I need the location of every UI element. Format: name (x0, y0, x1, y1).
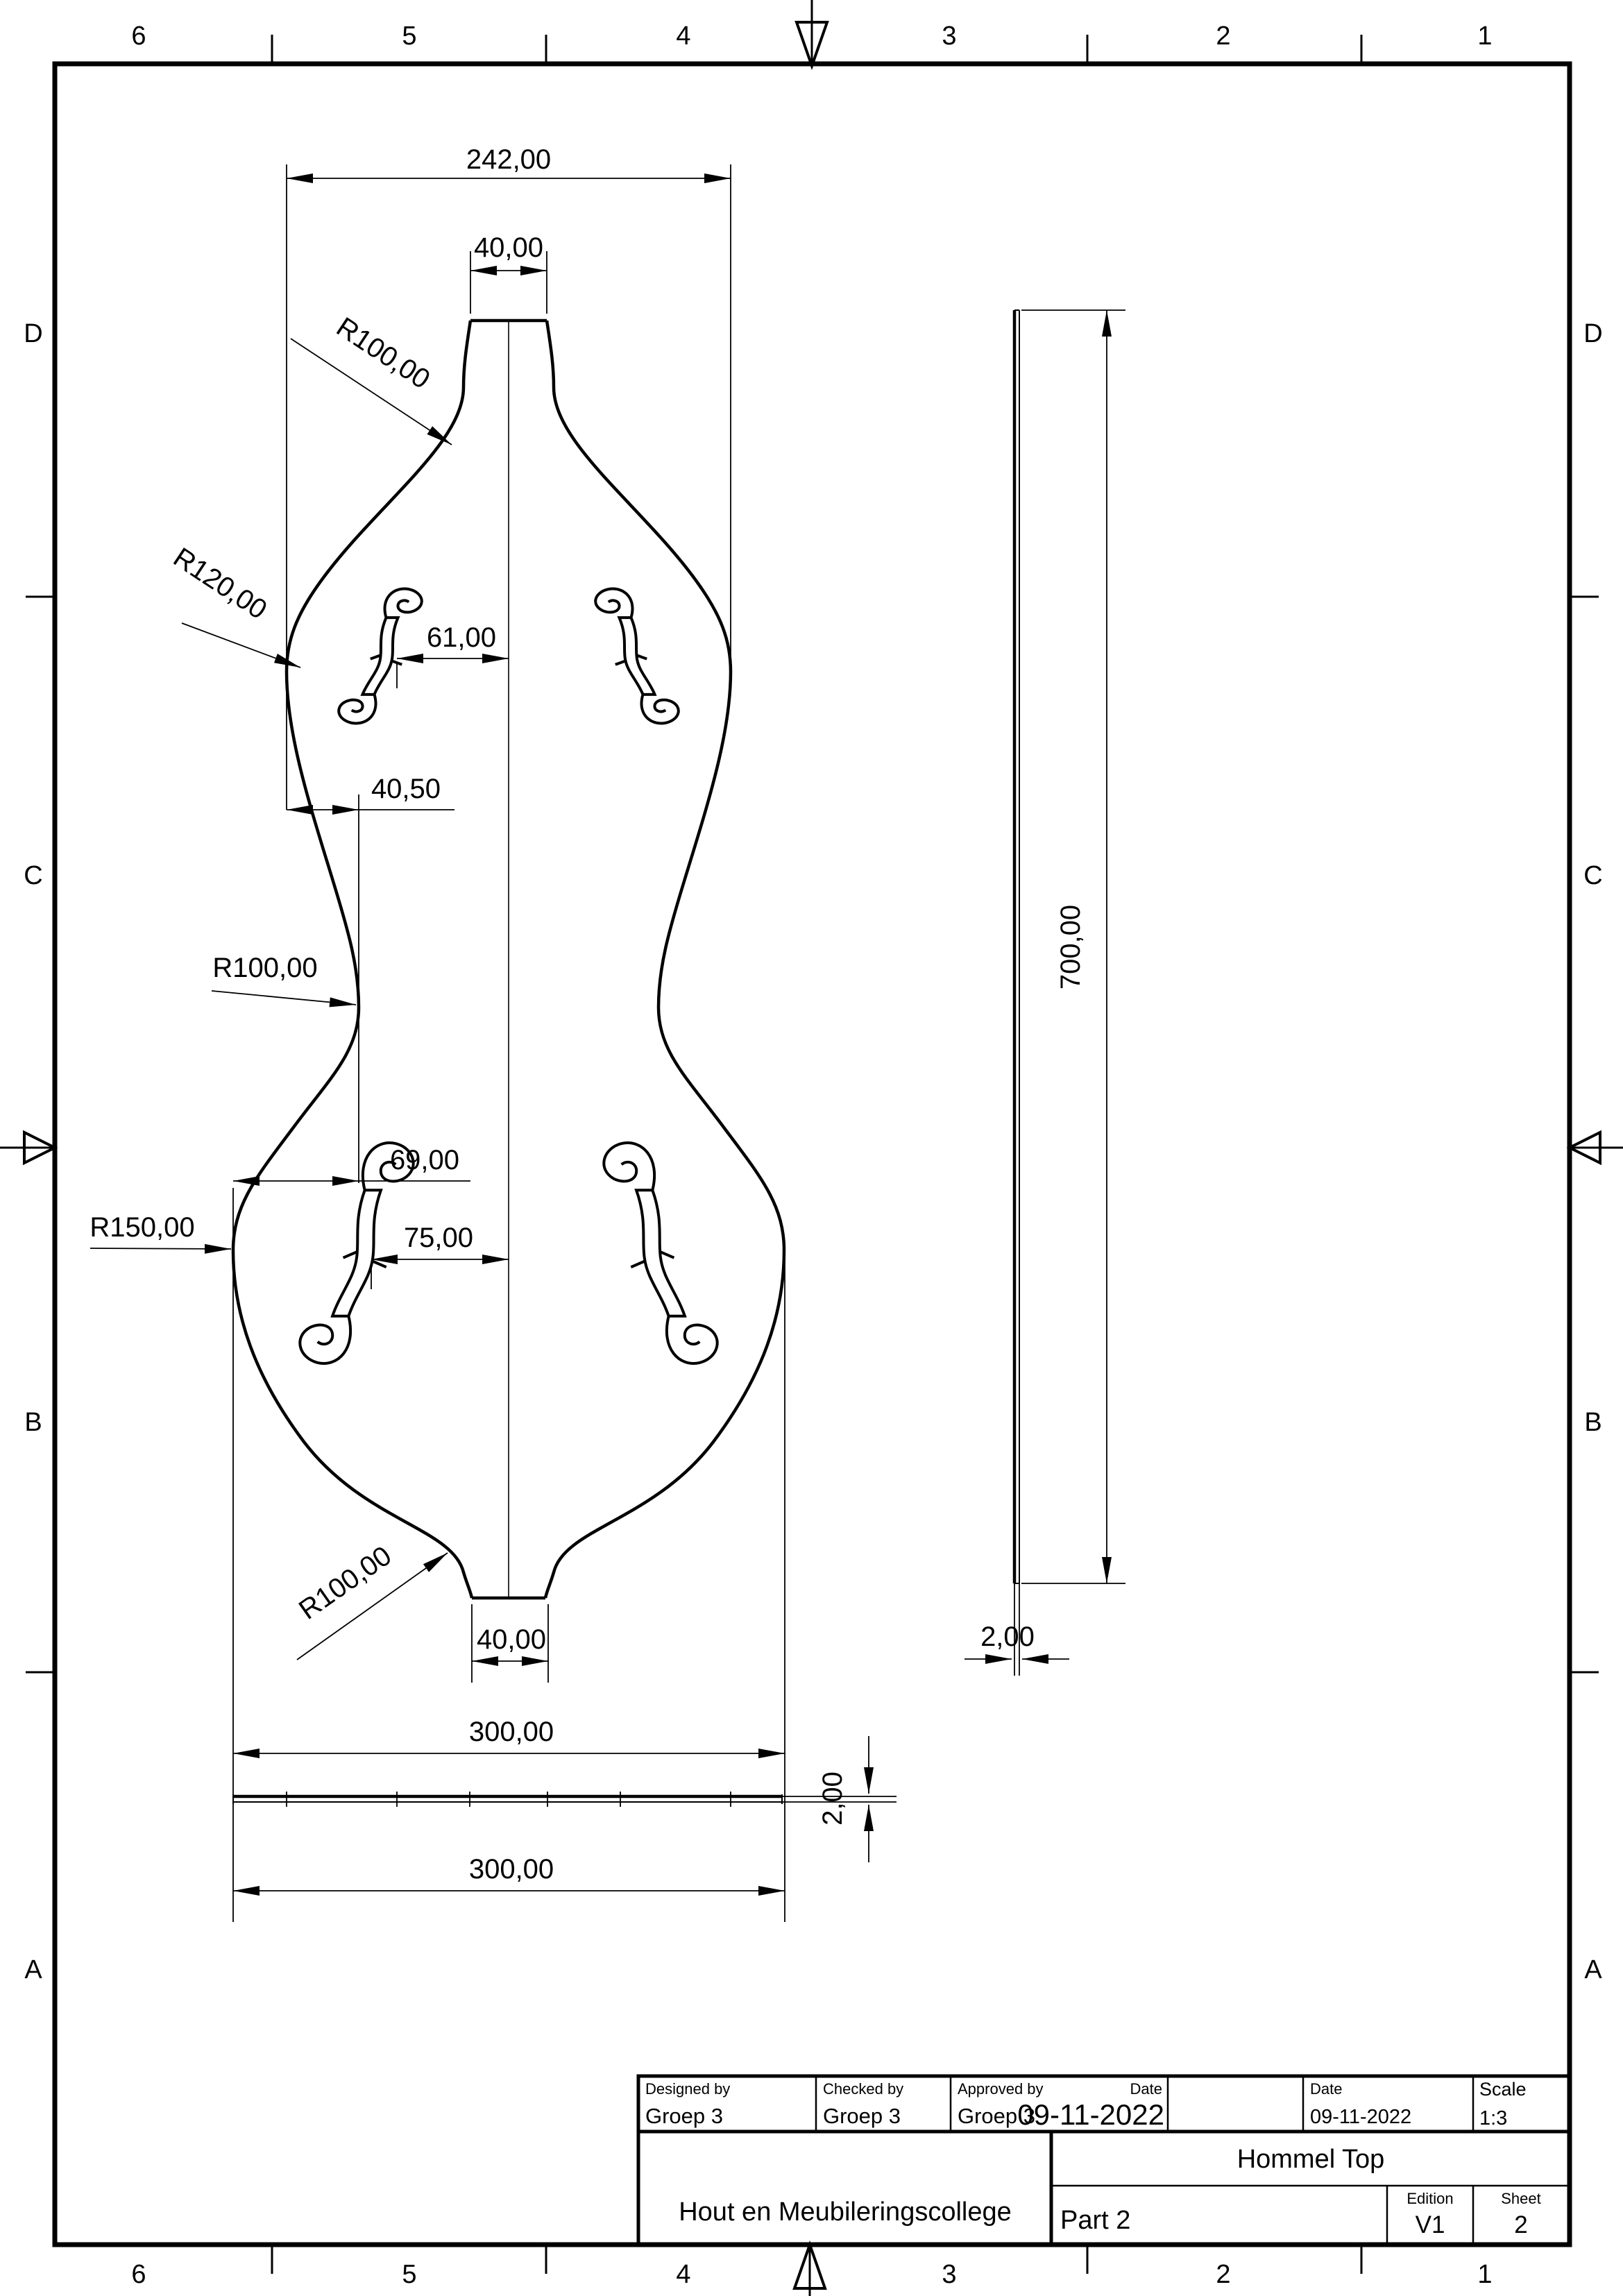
sheet-number: 2 (1514, 2211, 1527, 2238)
fhole-lower-right (604, 1143, 717, 1363)
grid-col-label: 6 (131, 22, 146, 51)
dim-tail-radius: R100,00 (294, 1540, 397, 1626)
grid-row-label: C (24, 861, 42, 890)
grid-row-label: D (24, 319, 42, 348)
scale-label: Scale (1479, 2079, 1527, 2100)
dim-tail-width: 40,00 (477, 1624, 546, 1655)
scale-value: 1:3 (1479, 2107, 1507, 2129)
grid-row-label: C (1583, 861, 1602, 890)
grid-col-label: 4 (676, 22, 690, 51)
dim-lower-bout-radius: R150,00 (90, 1212, 194, 1243)
dim-plate-thickness: 2,00 (817, 1771, 848, 1826)
dim-bout-offset: 69,00 (390, 1145, 459, 1175)
date-value: 09-11-2022 (1310, 2106, 1411, 2128)
dim-upper-bout-radius: R120,00 (168, 542, 272, 625)
checked-by-label: Checked by (823, 2080, 903, 2098)
grid-row-label: A (1584, 1955, 1602, 1984)
approved-by-label: Approved by (958, 2080, 1044, 2098)
plate-division-ticks (287, 1792, 731, 1807)
fhole-lower-left (300, 1143, 413, 1363)
centering-mark-left (0, 1132, 55, 1163)
grid-ticks (26, 35, 1599, 2274)
grid-col-label: 2 (1216, 2260, 1230, 2289)
grid-col-label: 4 (676, 2260, 690, 2289)
grid-col-label: 3 (942, 22, 956, 51)
dim-waist-offset: 40,50 (371, 774, 441, 804)
approved-date-value: 09-11-2022 (1017, 2098, 1164, 2131)
dim-plate-width: 300,00 (469, 1854, 554, 1885)
centering-mark-right (1570, 1132, 1623, 1163)
fhole-upper-right (595, 589, 679, 724)
checked-by-value: Groep 3 (823, 2104, 901, 2128)
centering-mark-bottom (794, 2245, 825, 2296)
dim-top-width: 242,00 (466, 144, 551, 175)
grid-col-label: 6 (131, 2260, 146, 2289)
edition-value: V1 (1416, 2211, 1445, 2238)
leader-line (212, 991, 356, 1005)
grid-col-label: 2 (1216, 22, 1230, 51)
grid-col-label: 5 (402, 22, 416, 51)
dim-bottom-width: 300,00 (469, 1717, 554, 1747)
grid-col-label: 1 (1477, 22, 1492, 51)
body-outline-right (545, 321, 784, 1598)
grid-row-label: B (1584, 1408, 1601, 1437)
grid-col-label: 5 (402, 2260, 416, 2289)
dim-neck-width: 40,00 (474, 232, 543, 263)
dim-waist-radius: R100,00 (212, 953, 317, 983)
drawing-sheet: 6 5 4 3 2 1 6 5 4 3 2 1 D C B A D C B A (0, 0, 1623, 2296)
date-label: Date (1310, 2080, 1342, 2098)
fhole-upper-left (339, 589, 422, 724)
sheet-label: Sheet (1501, 2190, 1541, 2207)
dim-side-length: 700,00 (1055, 905, 1086, 989)
grid-row-label: D (1583, 319, 1602, 348)
centering-mark-top (797, 0, 827, 66)
dim-fhole-upper-offset: 61,00 (427, 622, 496, 653)
bottom-view: 2,00 300,00 (233, 1736, 897, 1891)
dim-neck-radius: R100,00 (331, 312, 435, 395)
side-view: 700,00 2,00 (965, 310, 1125, 1676)
dim-fhole-lower-offset: 75,00 (404, 1223, 473, 1253)
part-number: Part 2 (1060, 2206, 1130, 2235)
designed-by-value: Groep 3 (645, 2104, 723, 2128)
grid-col-label: 3 (942, 2260, 956, 2289)
title-block: Designed by Groep 3 Checked by Groep 3 A… (638, 2076, 1570, 2245)
front-view-dimensions: 242,00 40,00 R100,00 R120,00 61,00 40,50… (90, 144, 785, 1922)
grid-col-label: 1 (1477, 2260, 1492, 2289)
designed-by-label: Designed by (645, 2080, 730, 2098)
leader-line (182, 623, 300, 667)
grid-row-label: A (24, 1955, 42, 1984)
inner-border (55, 64, 1570, 2245)
dim-side-thickness: 2,00 (980, 1622, 1035, 1652)
drawing-title: Hommel Top (1237, 2145, 1385, 2174)
approved-date-label: Date (1130, 2080, 1162, 2098)
sheet-frame: 6 5 4 3 2 1 6 5 4 3 2 1 D C B A D C B A (0, 0, 1623, 2296)
company-name: Hout en Meubileringscollege (679, 2197, 1012, 2227)
leader-line (90, 1248, 231, 1249)
edition-label: Edition (1407, 2190, 1453, 2207)
grid-row-label: B (24, 1408, 42, 1437)
